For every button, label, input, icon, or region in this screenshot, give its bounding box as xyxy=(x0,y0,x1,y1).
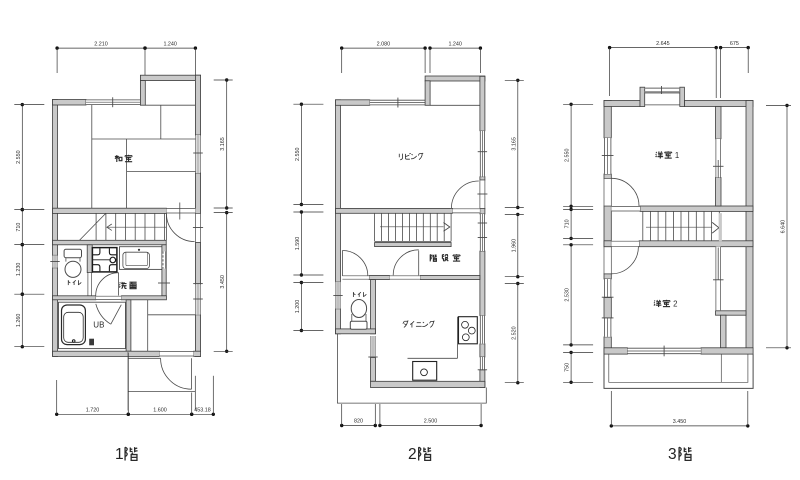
svg-text:1.240: 1.240 xyxy=(448,42,462,48)
svg-text:1.230: 1.230 xyxy=(16,263,22,277)
svg-text:675: 675 xyxy=(730,41,739,47)
svg-text:750: 750 xyxy=(565,363,571,372)
svg-text:2.530: 2.530 xyxy=(565,288,571,302)
svg-text:2: 2 xyxy=(673,299,677,308)
svg-text:2.080: 2.080 xyxy=(377,42,391,48)
svg-text:UB: UB xyxy=(93,321,104,330)
svg-text:1.600: 1.600 xyxy=(153,407,167,413)
svg-text:3.450: 3.450 xyxy=(220,275,226,289)
svg-text:1: 1 xyxy=(115,446,124,463)
svg-text:710: 710 xyxy=(565,219,571,228)
svg-text:1.200: 1.200 xyxy=(295,300,301,314)
svg-text:2.500: 2.500 xyxy=(424,419,438,425)
svg-text:3: 3 xyxy=(668,446,677,463)
svg-text:2.550: 2.550 xyxy=(565,149,571,163)
svg-text:1.240: 1.240 xyxy=(163,42,177,48)
svg-text:710: 710 xyxy=(16,223,22,232)
svg-text:6.640: 6.640 xyxy=(781,220,787,234)
svg-text:1.260: 1.260 xyxy=(16,314,22,328)
svg-text:1.590: 1.590 xyxy=(295,237,301,251)
svg-text:1.960: 1.960 xyxy=(511,239,517,253)
svg-text:2.210: 2.210 xyxy=(94,42,108,48)
svg-text:3.450: 3.450 xyxy=(673,419,687,425)
svg-text:3.165: 3.165 xyxy=(220,137,226,151)
svg-text:1: 1 xyxy=(675,151,679,160)
svg-text:2.520: 2.520 xyxy=(511,326,517,340)
svg-text:2.645: 2.645 xyxy=(656,41,670,47)
svg-text:2.550: 2.550 xyxy=(295,148,301,162)
svg-text:2.550: 2.550 xyxy=(16,150,22,164)
svg-text:3.165: 3.165 xyxy=(511,137,517,151)
svg-text:453.18: 453.18 xyxy=(194,407,211,413)
svg-text:2: 2 xyxy=(408,446,417,463)
svg-text:1.720: 1.720 xyxy=(86,407,100,413)
svg-text:820: 820 xyxy=(354,419,363,425)
